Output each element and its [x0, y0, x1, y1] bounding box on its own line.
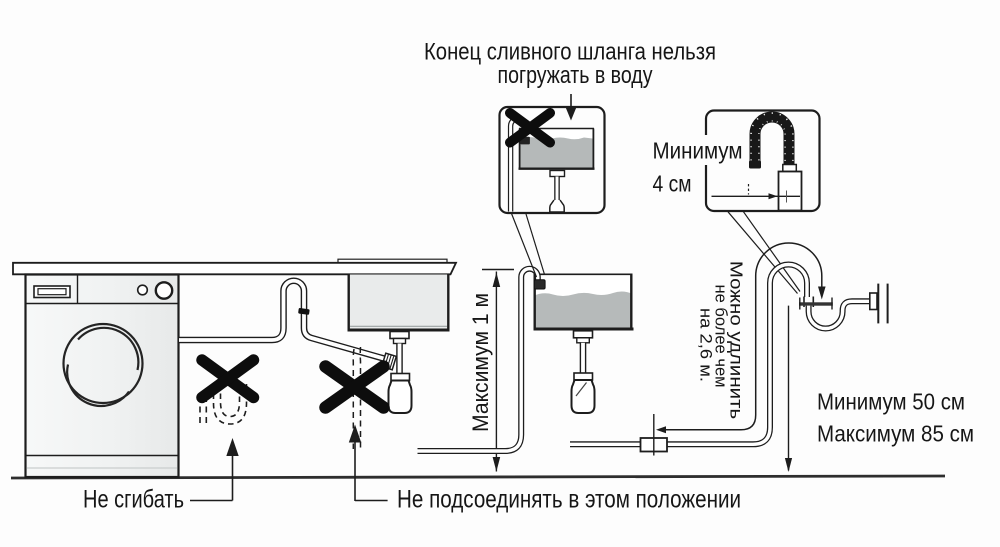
svg-text:Не подсоединять в этом положен: Не подсоединять в этом положении [397, 486, 741, 514]
svg-text:Максимум 1 м: Максимум 1 м [468, 293, 493, 432]
svg-text:Максимум 85 см: Максимум 85 см [817, 421, 974, 447]
svg-text:на 2,6 м.: на 2,6 м. [697, 308, 715, 382]
svg-text:4 см: 4 см [653, 171, 692, 197]
svg-text:погружать в воду: погружать в воду [498, 62, 653, 89]
svg-text:Минимум 50 см: Минимум 50 см [817, 389, 965, 415]
svg-text:Не сгибать: Не сгибать [83, 486, 184, 514]
svg-text:Минимум: Минимум [653, 138, 743, 164]
